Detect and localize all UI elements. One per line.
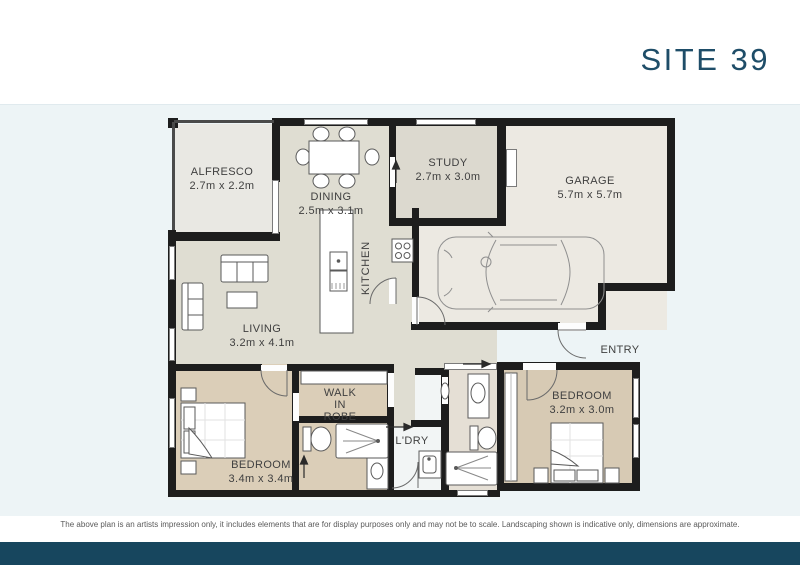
door-gap <box>523 363 556 370</box>
slider-door-gap <box>442 377 448 404</box>
window-marker <box>633 378 639 418</box>
room-label-living: LIVING3.2m x 4.1m <box>230 322 295 350</box>
robe-ensuite-floor <box>296 364 389 490</box>
alfresco-open-wall <box>172 122 175 232</box>
window-marker <box>169 328 175 361</box>
door-gap <box>412 297 419 324</box>
window-marker <box>169 246 175 280</box>
wall <box>272 118 280 182</box>
alfresco-slider-door <box>272 180 279 234</box>
disclaimer-text: The above plan is an artists impression … <box>0 517 800 533</box>
bottom-bar <box>0 542 800 565</box>
room-label-entry: ENTRY <box>600 343 639 357</box>
window-marker <box>444 363 497 370</box>
room-label-bedroom-rear: BEDROOM3.2m x 3.0m <box>550 389 615 417</box>
page-title: SITE 39 <box>641 42 771 78</box>
wall <box>497 118 506 226</box>
wall <box>598 283 606 330</box>
door-gap <box>390 157 395 187</box>
room-label-bedroom-main: BEDROOM3.4m x 3.4m <box>229 458 294 486</box>
wall <box>667 118 675 291</box>
bedroom-rear-floor <box>497 368 632 483</box>
wall <box>389 218 506 226</box>
room-label-garage: GARAGE5.7m x 5.7m <box>558 174 623 202</box>
door-gap <box>388 373 394 407</box>
window-marker <box>169 398 175 448</box>
room-label-walk-in-robe: WALK IN ROBE <box>324 387 357 423</box>
door-gap <box>261 365 287 371</box>
door-gap <box>389 278 396 304</box>
room-label-alfresco: ALFRESCO2.7m x 2.2m <box>190 165 255 193</box>
garage-niche <box>506 149 517 187</box>
wall <box>598 283 675 291</box>
floor-plan-page: SITE 39 <box>0 0 800 565</box>
wall <box>168 364 262 371</box>
window-marker <box>633 424 639 458</box>
bathroom-floor <box>448 368 497 490</box>
wall <box>411 322 560 330</box>
window-marker <box>457 490 488 496</box>
wall <box>168 490 500 497</box>
room-label-laundry: L'DRY <box>395 434 428 448</box>
door-gap <box>558 323 586 331</box>
wall <box>497 362 640 370</box>
window-marker <box>304 119 368 125</box>
wall <box>497 483 640 491</box>
room-label-kitchen: KITCHEN <box>360 241 372 295</box>
door-gap <box>293 393 299 421</box>
wall <box>287 364 390 371</box>
window-marker <box>416 119 476 125</box>
wall <box>168 232 280 241</box>
alfresco-open-wall <box>174 120 274 123</box>
wall <box>497 362 504 491</box>
wall <box>411 420 443 427</box>
room-label-dining: DINING2.5m x 3.1m <box>299 190 364 218</box>
room-label-study: STUDY2.7m x 3.0m <box>416 156 481 184</box>
